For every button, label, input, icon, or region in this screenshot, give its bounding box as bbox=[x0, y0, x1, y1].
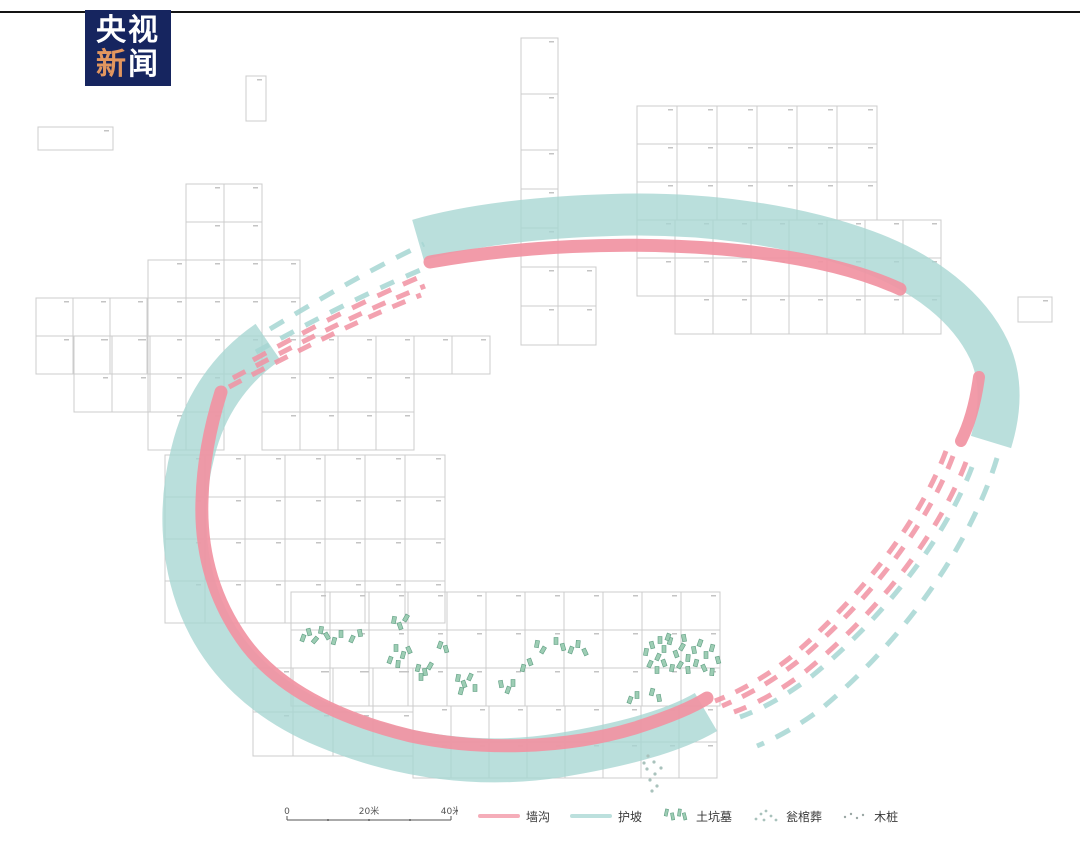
grid-cell bbox=[447, 630, 486, 668]
grid-cell-label-mark bbox=[141, 377, 146, 379]
grid-cell-label-mark bbox=[632, 709, 637, 711]
grid-cell-label-mark bbox=[708, 709, 713, 711]
grid-cell-label-mark bbox=[438, 671, 443, 673]
grid-cell-label-mark bbox=[549, 270, 554, 272]
grid-cell bbox=[405, 539, 445, 581]
grid-cell bbox=[285, 497, 325, 539]
grid-cell-label-mark bbox=[399, 671, 404, 673]
grid-cell bbox=[376, 374, 414, 412]
grid-cell-label-mark bbox=[549, 192, 554, 194]
grid-cell bbox=[757, 106, 797, 144]
grid-cell-label-mark bbox=[177, 301, 182, 303]
slope-dashed-se-outer bbox=[757, 458, 997, 746]
pit-tomb-mark bbox=[455, 674, 460, 682]
pit-tomb-mark bbox=[693, 659, 699, 667]
grid-cell bbox=[36, 298, 73, 336]
pit-tomb-mark bbox=[582, 648, 589, 656]
grid-cell bbox=[325, 455, 365, 497]
grid-cell bbox=[365, 455, 405, 497]
pit-tomb-mark bbox=[661, 659, 667, 667]
grid-cell-label-mark bbox=[367, 377, 372, 379]
grid-cell-label-mark bbox=[932, 223, 937, 225]
grid-cell bbox=[489, 706, 527, 742]
grid-cell-label-mark bbox=[556, 709, 561, 711]
grid-cell bbox=[637, 144, 677, 182]
grid-cell bbox=[148, 336, 186, 374]
pit-tomb-mark bbox=[406, 646, 413, 654]
grid-cell bbox=[365, 581, 405, 623]
pit-tomb-mark bbox=[331, 637, 337, 645]
grid-cell bbox=[365, 497, 405, 539]
grid-cell-label-mark bbox=[215, 187, 220, 189]
grid-cell-label-mark bbox=[101, 301, 106, 303]
grid-cell-label-mark bbox=[329, 377, 334, 379]
dot-mark bbox=[650, 789, 653, 792]
grid-cell bbox=[637, 106, 677, 144]
pit-tomb-mark bbox=[461, 680, 467, 688]
cctv-news-logo: 央视 新闻 bbox=[85, 10, 171, 86]
grid-cell bbox=[73, 298, 110, 336]
grid-cell bbox=[521, 150, 558, 189]
pit-tomb-mark bbox=[669, 664, 674, 672]
grid-cell-label-mark bbox=[396, 584, 401, 586]
grid-cell bbox=[405, 581, 445, 623]
pit-tomb-mark bbox=[627, 696, 633, 704]
grid-cell-label-mark bbox=[438, 633, 443, 635]
grid-cell-label-mark bbox=[364, 671, 369, 673]
grid-cell-label-mark bbox=[436, 584, 441, 586]
pit-tomb-mark bbox=[635, 692, 639, 699]
grid-cell-label-mark bbox=[477, 633, 482, 635]
ditch-dashed-nw-mid bbox=[253, 274, 427, 360]
grid-cell bbox=[679, 742, 717, 778]
grid-cell-label-mark bbox=[742, 299, 747, 301]
grid-cell bbox=[564, 592, 603, 630]
pit-tomb-mark bbox=[415, 664, 421, 672]
grid-cell-label-mark bbox=[828, 147, 833, 149]
urn-burial-swatch bbox=[752, 807, 780, 825]
stake-dot-marks bbox=[642, 754, 662, 792]
grid-cell bbox=[330, 592, 369, 630]
grid-cell-label-mark bbox=[477, 595, 482, 597]
grid-cell-label-mark bbox=[329, 339, 334, 341]
legend-label-ditch: 墙沟 bbox=[526, 808, 550, 825]
grid-cell bbox=[486, 592, 525, 630]
grid-cell bbox=[751, 296, 789, 334]
grid-cell-label-mark bbox=[405, 415, 410, 417]
grid-cell-label-mark bbox=[594, 671, 599, 673]
grid-cell-label-mark bbox=[555, 633, 560, 635]
grid-cell-label-mark bbox=[436, 500, 441, 502]
grid-cell bbox=[112, 336, 150, 374]
dot-mark bbox=[652, 760, 655, 763]
slope-dashed-nw-outer bbox=[270, 244, 424, 329]
grid-cell bbox=[338, 336, 376, 374]
legend-item-urn-burial: 瓮棺葬 bbox=[752, 807, 822, 825]
grid-cell-label-mark bbox=[356, 500, 361, 502]
grid-cell-label-mark bbox=[177, 415, 182, 417]
grid-cell-label-mark bbox=[291, 339, 296, 341]
grid-cell-label-mark bbox=[481, 339, 486, 341]
pit-tomb-mark bbox=[686, 654, 691, 661]
logo-row-2: 新闻 bbox=[96, 48, 160, 82]
grid-cell-label-mark bbox=[868, 147, 873, 149]
grid-cell bbox=[865, 296, 903, 334]
grid-cell bbox=[751, 258, 789, 296]
grid-cell-label-mark bbox=[367, 415, 372, 417]
grid-cell-label-mark bbox=[633, 595, 638, 597]
grid-cell-label-mark bbox=[253, 225, 258, 227]
grid-cell-label-mark bbox=[405, 377, 410, 379]
pit-tomb-mark bbox=[311, 636, 319, 644]
grid-cell bbox=[365, 539, 405, 581]
grid-cell-label-mark bbox=[549, 41, 554, 43]
grid-cell-label-mark bbox=[215, 263, 220, 265]
grid-cell-label-mark bbox=[780, 299, 785, 301]
grid-cell-label-mark bbox=[856, 223, 861, 225]
grid-cell-label-mark bbox=[708, 745, 713, 747]
pit-tomb-mark bbox=[655, 667, 659, 674]
grid-cell bbox=[373, 668, 413, 712]
grid-cell bbox=[675, 258, 713, 296]
grid-cell-label-mark bbox=[356, 584, 361, 586]
grid-cell-label-mark bbox=[138, 301, 143, 303]
grid-cell bbox=[408, 630, 447, 668]
logo-char-yang: 央 bbox=[96, 13, 128, 48]
grid-cell-label-mark bbox=[480, 709, 485, 711]
pit-tomb-mark bbox=[643, 648, 648, 656]
grid-cell-label-mark bbox=[516, 595, 521, 597]
pit-tomb-mark bbox=[658, 637, 662, 644]
grid-cell-label-mark bbox=[276, 458, 281, 460]
grid-cell-label-mark bbox=[236, 500, 241, 502]
grid-cell bbox=[333, 668, 373, 712]
pit-tomb-mark bbox=[396, 660, 401, 667]
dot-mark bbox=[659, 766, 662, 769]
grid-cell bbox=[521, 38, 558, 94]
grid-cell bbox=[38, 127, 113, 150]
grid-cell-label-mark bbox=[291, 377, 296, 379]
grid-cell bbox=[285, 539, 325, 581]
slope-line-swatch bbox=[570, 814, 612, 818]
grid-cell bbox=[300, 412, 338, 450]
grid-cell-label-mark bbox=[708, 185, 713, 187]
grid-cell-label-mark bbox=[668, 185, 673, 187]
grid-cell-label-mark bbox=[633, 633, 638, 635]
grid-cell-label-mark bbox=[868, 109, 873, 111]
grid-cell-label-mark bbox=[748, 185, 753, 187]
grid-cell-label-mark bbox=[177, 377, 182, 379]
grid-cell bbox=[110, 336, 147, 374]
grid-cell bbox=[797, 106, 837, 144]
grid-cell-label-mark bbox=[215, 301, 220, 303]
grid-cell-label-mark bbox=[868, 185, 873, 187]
grid-cell bbox=[525, 668, 564, 706]
grid-cell bbox=[325, 581, 365, 623]
grid-cell bbox=[369, 592, 408, 630]
pit-tomb-mark bbox=[387, 656, 393, 664]
slope-dashed-nw-mid bbox=[256, 266, 430, 352]
grid-cell bbox=[291, 630, 330, 668]
grid-cell-label-mark bbox=[215, 225, 220, 227]
grid-cell bbox=[224, 184, 262, 222]
pit-tomb-mark bbox=[511, 680, 515, 687]
scale-label-0: 0 bbox=[284, 807, 290, 817]
dot-mark bbox=[645, 767, 648, 770]
logo-char-xin: 新 bbox=[96, 47, 128, 82]
grid-cell bbox=[827, 296, 865, 334]
grid-cell bbox=[186, 222, 224, 260]
grid-cell bbox=[558, 306, 596, 345]
grid-cell bbox=[262, 298, 300, 336]
pit-tomb-mark bbox=[419, 674, 423, 681]
grid-cell bbox=[713, 258, 751, 296]
grid-cell-label-mark bbox=[436, 542, 441, 544]
pit-tomb-mark bbox=[560, 643, 566, 651]
grid-cell bbox=[262, 260, 300, 298]
pit-tomb-mark bbox=[576, 640, 581, 647]
legend-item-wooden-stakes: 木桩 bbox=[842, 807, 898, 825]
grid-cell bbox=[245, 455, 285, 497]
grid-cell bbox=[205, 497, 245, 539]
grid-cell-label-mark bbox=[518, 709, 523, 711]
grid-cell-label-mark bbox=[253, 263, 258, 265]
grid-cell-label-mark bbox=[438, 595, 443, 597]
pit-tomb-mark bbox=[357, 629, 362, 637]
grid-cell bbox=[717, 144, 757, 182]
grid-cell-label-mark bbox=[549, 153, 554, 155]
grid-cell-label-mark bbox=[788, 147, 793, 149]
dot-mark bbox=[648, 778, 651, 781]
grid-cell bbox=[789, 296, 827, 334]
grid-cell bbox=[74, 336, 112, 374]
grid-cell-label-mark bbox=[236, 458, 241, 460]
grid-cell bbox=[325, 539, 365, 581]
pit-tomb-mark bbox=[540, 646, 547, 654]
grid-cell-label-mark bbox=[64, 301, 69, 303]
grid-cell bbox=[148, 298, 186, 336]
grid-cell bbox=[408, 592, 447, 630]
grid-cell-label-mark bbox=[316, 584, 321, 586]
grid-cell bbox=[110, 298, 147, 336]
grid-cell-label-mark bbox=[704, 299, 709, 301]
grid-cell bbox=[338, 412, 376, 450]
scale-tick-q1 bbox=[327, 819, 329, 821]
grid-cell bbox=[148, 260, 186, 298]
grid-cell bbox=[642, 592, 681, 630]
grid-cell-label-mark bbox=[549, 97, 554, 99]
pit-tomb-mark bbox=[686, 666, 691, 673]
grid-cell bbox=[521, 306, 558, 345]
grid-cell bbox=[405, 497, 445, 539]
grid-cell-label-mark bbox=[399, 595, 404, 597]
grid-cell bbox=[285, 455, 325, 497]
pit-tomb-marks bbox=[300, 614, 721, 704]
pit-tomb-mark bbox=[681, 634, 686, 642]
grid-cell-label-mark bbox=[396, 500, 401, 502]
grid-cell bbox=[36, 336, 73, 374]
pit-tomb-mark bbox=[568, 646, 574, 654]
grid-cell-label-mark bbox=[668, 147, 673, 149]
scale-tick-q3 bbox=[409, 819, 411, 821]
grid-cell-label-mark bbox=[594, 709, 599, 711]
grid-cell-label-mark bbox=[177, 263, 182, 265]
dot-mark bbox=[653, 772, 656, 775]
inferred-dashed-lines bbox=[229, 244, 997, 746]
grid-cell bbox=[447, 592, 486, 630]
grid-cell bbox=[291, 592, 330, 630]
pit-tomb-mark bbox=[324, 632, 331, 640]
grid-cell-label-mark bbox=[818, 299, 823, 301]
grid-cell-label-mark bbox=[104, 130, 109, 132]
grid-cell bbox=[330, 630, 369, 668]
grid-cell-label-mark bbox=[64, 339, 69, 341]
grid-cell-label-mark bbox=[404, 715, 409, 717]
grid-cell bbox=[376, 412, 414, 450]
grid-cell-label-mark bbox=[405, 339, 410, 341]
pit-tomb-mark bbox=[673, 650, 679, 658]
grid-cell-label-mark bbox=[748, 109, 753, 111]
grid-cell-label-mark bbox=[708, 147, 713, 149]
grid-cell-label-mark bbox=[257, 79, 262, 81]
grid-cell-label-mark bbox=[443, 339, 448, 341]
grid-cell-label-mark bbox=[316, 542, 321, 544]
scale-label-20m: 20米 bbox=[359, 805, 379, 817]
pit-tomb-mark bbox=[394, 645, 398, 652]
grid-cell bbox=[148, 374, 186, 412]
grid-cell bbox=[224, 222, 262, 260]
dot-mark bbox=[655, 784, 658, 787]
pit-tomb-mark bbox=[647, 660, 654, 668]
grid-cell-label-mark bbox=[788, 185, 793, 187]
grid-cell-label-mark bbox=[253, 187, 258, 189]
pit-tomb-mark bbox=[427, 662, 434, 670]
grid-cell bbox=[637, 258, 675, 296]
pit-tomb-mark bbox=[300, 634, 306, 642]
pit-tomb-mark bbox=[443, 645, 449, 653]
grid-cell bbox=[186, 184, 224, 222]
grid-cell-label-mark bbox=[516, 633, 521, 635]
grid-cell-label-mark bbox=[666, 261, 671, 263]
grid-cell bbox=[797, 144, 837, 182]
grid-cell bbox=[246, 76, 266, 121]
grid-cell bbox=[717, 106, 757, 144]
grid-cell-label-mark bbox=[360, 595, 365, 597]
grid-cell bbox=[837, 144, 877, 182]
grid-cell-label-mark bbox=[396, 542, 401, 544]
grid-cell bbox=[405, 455, 445, 497]
logo-char-wen: 闻 bbox=[128, 47, 160, 82]
grid-cell-label-mark bbox=[704, 261, 709, 263]
grid-cell bbox=[300, 374, 338, 412]
grid-cell-label-mark bbox=[399, 633, 404, 635]
legend-label-urn-burial: 瓮棺葬 bbox=[786, 808, 822, 825]
grid-cell bbox=[245, 581, 285, 623]
grid-cell-label-mark bbox=[356, 458, 361, 460]
grid-cell bbox=[414, 336, 452, 374]
grid-cell-label-mark bbox=[708, 109, 713, 111]
legend-label-slope: 护坡 bbox=[618, 808, 642, 825]
grid-cell bbox=[486, 630, 525, 668]
pit-tomb-mark bbox=[318, 626, 323, 634]
grid-cell-label-mark bbox=[711, 595, 716, 597]
grid-cell bbox=[681, 592, 720, 630]
pit-tomb-mark bbox=[679, 643, 686, 651]
grid-cell bbox=[713, 296, 751, 334]
pit-tomb-mark bbox=[467, 673, 474, 681]
pit-tomb-mark bbox=[391, 616, 396, 624]
pit-tomb-mark bbox=[534, 640, 539, 648]
legend-label-pit-tombs: 土坑墓 bbox=[696, 808, 732, 825]
pit-tomb-mark bbox=[554, 638, 558, 645]
grid-cell-label-mark bbox=[442, 709, 447, 711]
grid-cell bbox=[558, 267, 596, 306]
grid-cell bbox=[338, 374, 376, 412]
pit-tomb-mark bbox=[649, 688, 655, 696]
pit-tomb-mark bbox=[339, 631, 343, 638]
grid-cell-label-mark bbox=[276, 584, 281, 586]
logo-char-shi: 视 bbox=[128, 13, 160, 48]
pit-tomb-mark bbox=[649, 641, 655, 649]
grid-cell-label-mark bbox=[516, 671, 521, 673]
pit-tomb-mark bbox=[709, 644, 715, 652]
pit-tomb-mark bbox=[400, 651, 406, 659]
pit-tomb-mark bbox=[691, 646, 696, 654]
grid-cell bbox=[677, 144, 717, 182]
grid-cell-label-mark bbox=[291, 263, 296, 265]
pit-tomb-mark bbox=[656, 694, 661, 702]
grid-cell bbox=[330, 668, 369, 706]
grid-cell bbox=[521, 267, 558, 306]
grid-cell-label-mark bbox=[587, 270, 592, 272]
news-site-plan-image: 央视 新闻 0 20米 40米 墙沟 护坡 bbox=[0, 0, 1080, 861]
grid-cell-label-mark bbox=[284, 671, 289, 673]
grid-cell bbox=[74, 374, 112, 412]
grid-cell bbox=[112, 374, 150, 412]
grid-cell bbox=[262, 412, 300, 450]
grid-cell bbox=[675, 296, 713, 334]
scale-label-40m: 40米 bbox=[441, 805, 458, 817]
grid-cell-label-mark bbox=[1043, 300, 1048, 302]
grid-cell-label-mark bbox=[856, 299, 861, 301]
grid-cell-label-mark bbox=[828, 109, 833, 111]
pit-tomb-mark bbox=[710, 668, 715, 675]
pit-tomb-mark bbox=[498, 680, 503, 688]
grid-cell-label-mark bbox=[633, 671, 638, 673]
legend-label-wooden-stakes: 木桩 bbox=[874, 808, 898, 825]
logo-row-1: 央视 bbox=[96, 14, 160, 48]
grid-cell-label-mark bbox=[253, 301, 258, 303]
dot-mark bbox=[642, 761, 645, 764]
ditch-line-swatch bbox=[478, 814, 520, 818]
grid-cell bbox=[603, 592, 642, 630]
legend-item-pit-tombs: 土坑墓 bbox=[662, 807, 732, 825]
grid-cell-label-mark bbox=[236, 542, 241, 544]
grid-cell-label-mark bbox=[404, 671, 409, 673]
pit-tomb-mark bbox=[306, 628, 312, 636]
pit-tomb-mark bbox=[437, 641, 443, 649]
grid-cell bbox=[369, 668, 408, 706]
grid-cell bbox=[245, 539, 285, 581]
grid-cell bbox=[452, 336, 490, 374]
grid-cell bbox=[837, 106, 877, 144]
grid-cell-label-mark bbox=[276, 500, 281, 502]
grid-cell-label-mark bbox=[742, 261, 747, 263]
grid-cell-label-mark bbox=[436, 458, 441, 460]
grid-cell-label-mark bbox=[177, 339, 182, 341]
pit-tomb-mark bbox=[473, 685, 477, 692]
grid-cell bbox=[262, 374, 300, 412]
